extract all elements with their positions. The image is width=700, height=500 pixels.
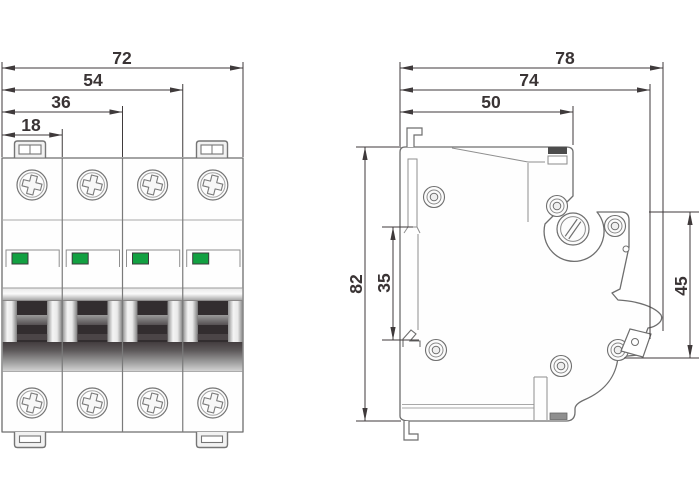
terminal-screw <box>77 170 107 200</box>
housing-screw <box>547 196 568 217</box>
top-clip <box>197 141 228 158</box>
dim-label-54: 54 <box>83 70 103 90</box>
top-clip <box>15 141 46 158</box>
drawing-canvas: 72 54 36 18 <box>0 0 700 500</box>
status-indicator-green <box>133 253 149 264</box>
bottom-slot <box>550 413 567 420</box>
dim-label-35: 35 <box>374 273 394 293</box>
front-breaker-body <box>2 141 243 448</box>
terminal-screw <box>17 170 47 200</box>
toggle-handle <box>183 301 243 342</box>
technical-drawing: 72 54 36 18 <box>0 0 700 500</box>
toggle-handle <box>62 301 122 342</box>
terminal-screw <box>198 170 228 200</box>
housing-screw <box>426 340 447 361</box>
dim-label-45: 45 <box>671 276 691 296</box>
status-indicator-green <box>12 253 28 264</box>
terminal-screw <box>198 388 228 418</box>
side-top-clip <box>407 128 422 147</box>
slotted-fastener <box>557 213 589 245</box>
housing-screw <box>551 356 572 377</box>
dim-label-78: 78 <box>555 48 575 68</box>
side-bottom-clip <box>404 421 418 440</box>
dim-label-72: 72 <box>112 48 132 68</box>
bottom-clip <box>197 432 228 448</box>
terminal-screw <box>138 170 168 200</box>
housing-screw <box>605 216 626 237</box>
dim-label-82: 82 <box>346 274 366 294</box>
dim-label-36: 36 <box>51 92 71 112</box>
housing-screw <box>424 187 445 208</box>
toggle-handle <box>123 301 183 342</box>
bottom-clip <box>15 432 46 448</box>
front-view: 72 54 36 18 <box>2 48 243 448</box>
terminal-screw <box>77 388 107 418</box>
terminal-slot-dark <box>548 147 567 154</box>
side-breaker-body <box>400 128 662 440</box>
status-indicator-green <box>72 253 88 264</box>
terminal-slot-light <box>548 156 567 164</box>
dim-label-18: 18 <box>21 115 41 135</box>
terminal-screw <box>17 388 47 418</box>
toggle-handle <box>2 301 62 342</box>
dim-label-50: 50 <box>481 92 501 112</box>
dim-label-74: 74 <box>519 70 539 90</box>
terminal-screw <box>138 388 168 418</box>
side-view: 78 74 50 82 35 45 <box>346 48 699 440</box>
status-indicator-green <box>193 253 209 264</box>
